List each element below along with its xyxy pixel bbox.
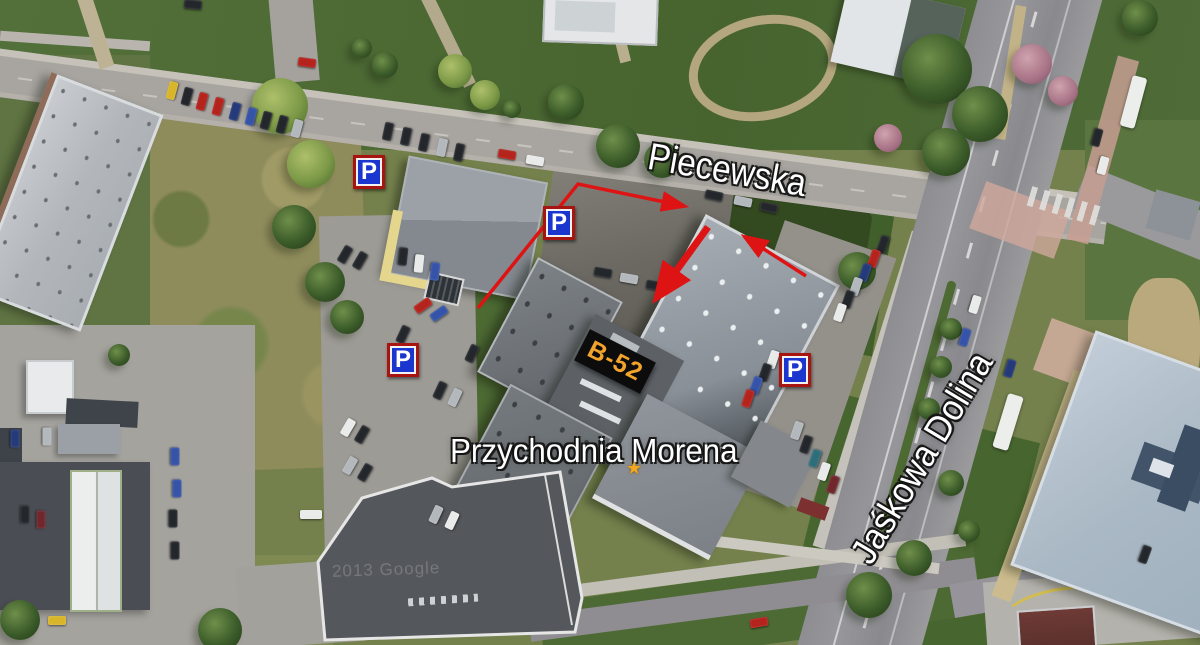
parking-letter: P	[787, 358, 803, 382]
street-label-jaskowa-dolina: Jaśkowa Dolina	[843, 345, 1002, 571]
parking-sign-icon: P	[543, 206, 575, 240]
bus-line-tag: B-52	[574, 329, 656, 394]
aerial-map: P P P P B-52 Piecewska Jaśkowa Dolina Pr…	[0, 0, 1200, 645]
parking-letter: P	[395, 348, 411, 372]
star-marker-icon: ★	[626, 458, 642, 479]
annotations-layer: P P P P B-52 Piecewska Jaśkowa Dolina Pr…	[0, 0, 1200, 645]
parking-sign-icon: P	[353, 155, 385, 189]
google-watermark: 2013 Google	[332, 558, 441, 582]
parking-sign-icon: P	[779, 353, 811, 387]
parking-letter: P	[551, 211, 567, 235]
parking-sign-icon: P	[387, 343, 419, 377]
parking-letter: P	[361, 160, 377, 184]
place-label-przychodnia-morena: Przychodnia Morena	[450, 432, 738, 470]
street-label-piecewska: Piecewska	[645, 136, 810, 206]
